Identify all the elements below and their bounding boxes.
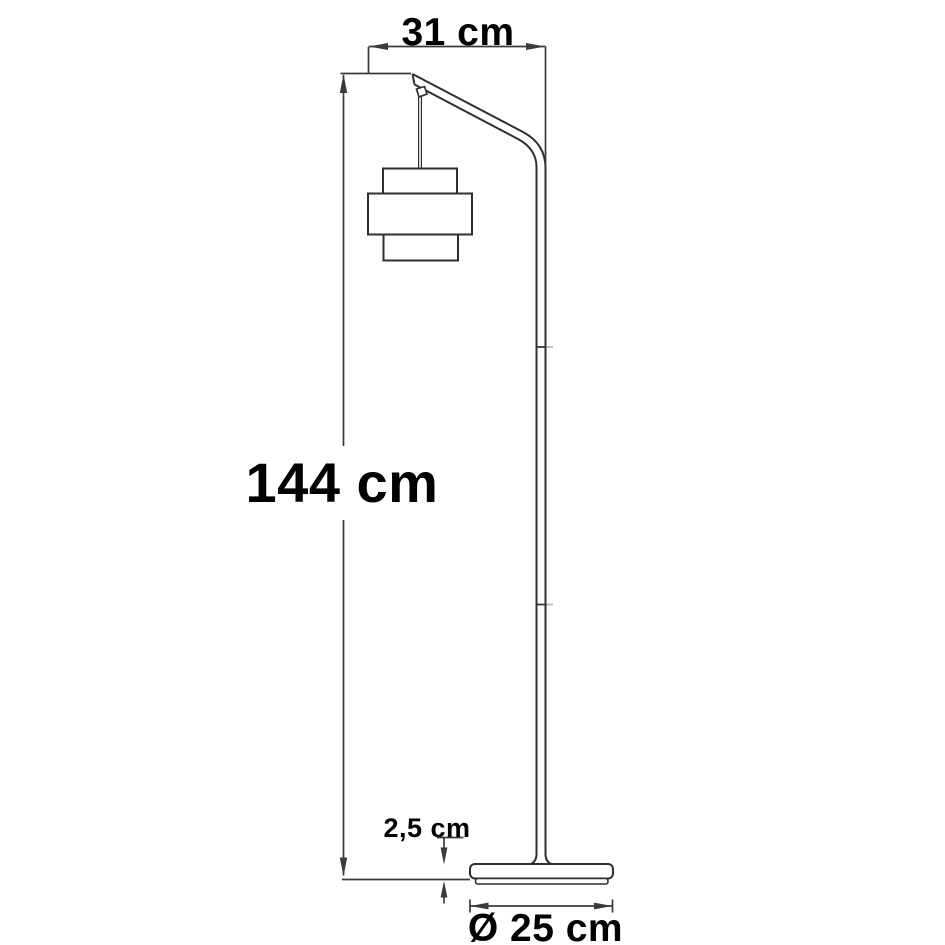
arrowhead-up [340, 74, 347, 93]
diagram-drawing [0, 0, 945, 945]
dim-height-label: 144 cm [246, 446, 438, 520]
lamp-shade-bottom-tier [384, 235, 459, 261]
lamp-base-underside [476, 879, 609, 885]
arrowhead-down [441, 848, 448, 865]
lamp-cord-hinge [417, 87, 428, 98]
lamp-shade [368, 169, 472, 261]
dim-base-thickness-label: 2,5 cm [382, 815, 472, 842]
lamp-shade-top-tier [383, 169, 457, 194]
lamp-cord [419, 97, 422, 169]
dim-width-label: 31 cm [378, 13, 538, 52]
arrowhead-down [340, 858, 347, 877]
dim-width [341, 43, 546, 167]
lamp-dimension-diagram: 31 cm 144 cm 2,5 cm Ø 25 cm [0, 0, 945, 945]
lamp-base-plate [470, 864, 613, 879]
lamp-shade-middle-tier [368, 194, 472, 235]
dim-base-diameter-label: Ø 25 cm [463, 909, 628, 945]
lamp-pole-foot [532, 855, 551, 864]
lamp-pole-seams [536, 347, 554, 605]
dim-base-thickness [437, 838, 464, 904]
lamp-base [470, 864, 613, 884]
arrowhead-up [441, 881, 448, 898]
